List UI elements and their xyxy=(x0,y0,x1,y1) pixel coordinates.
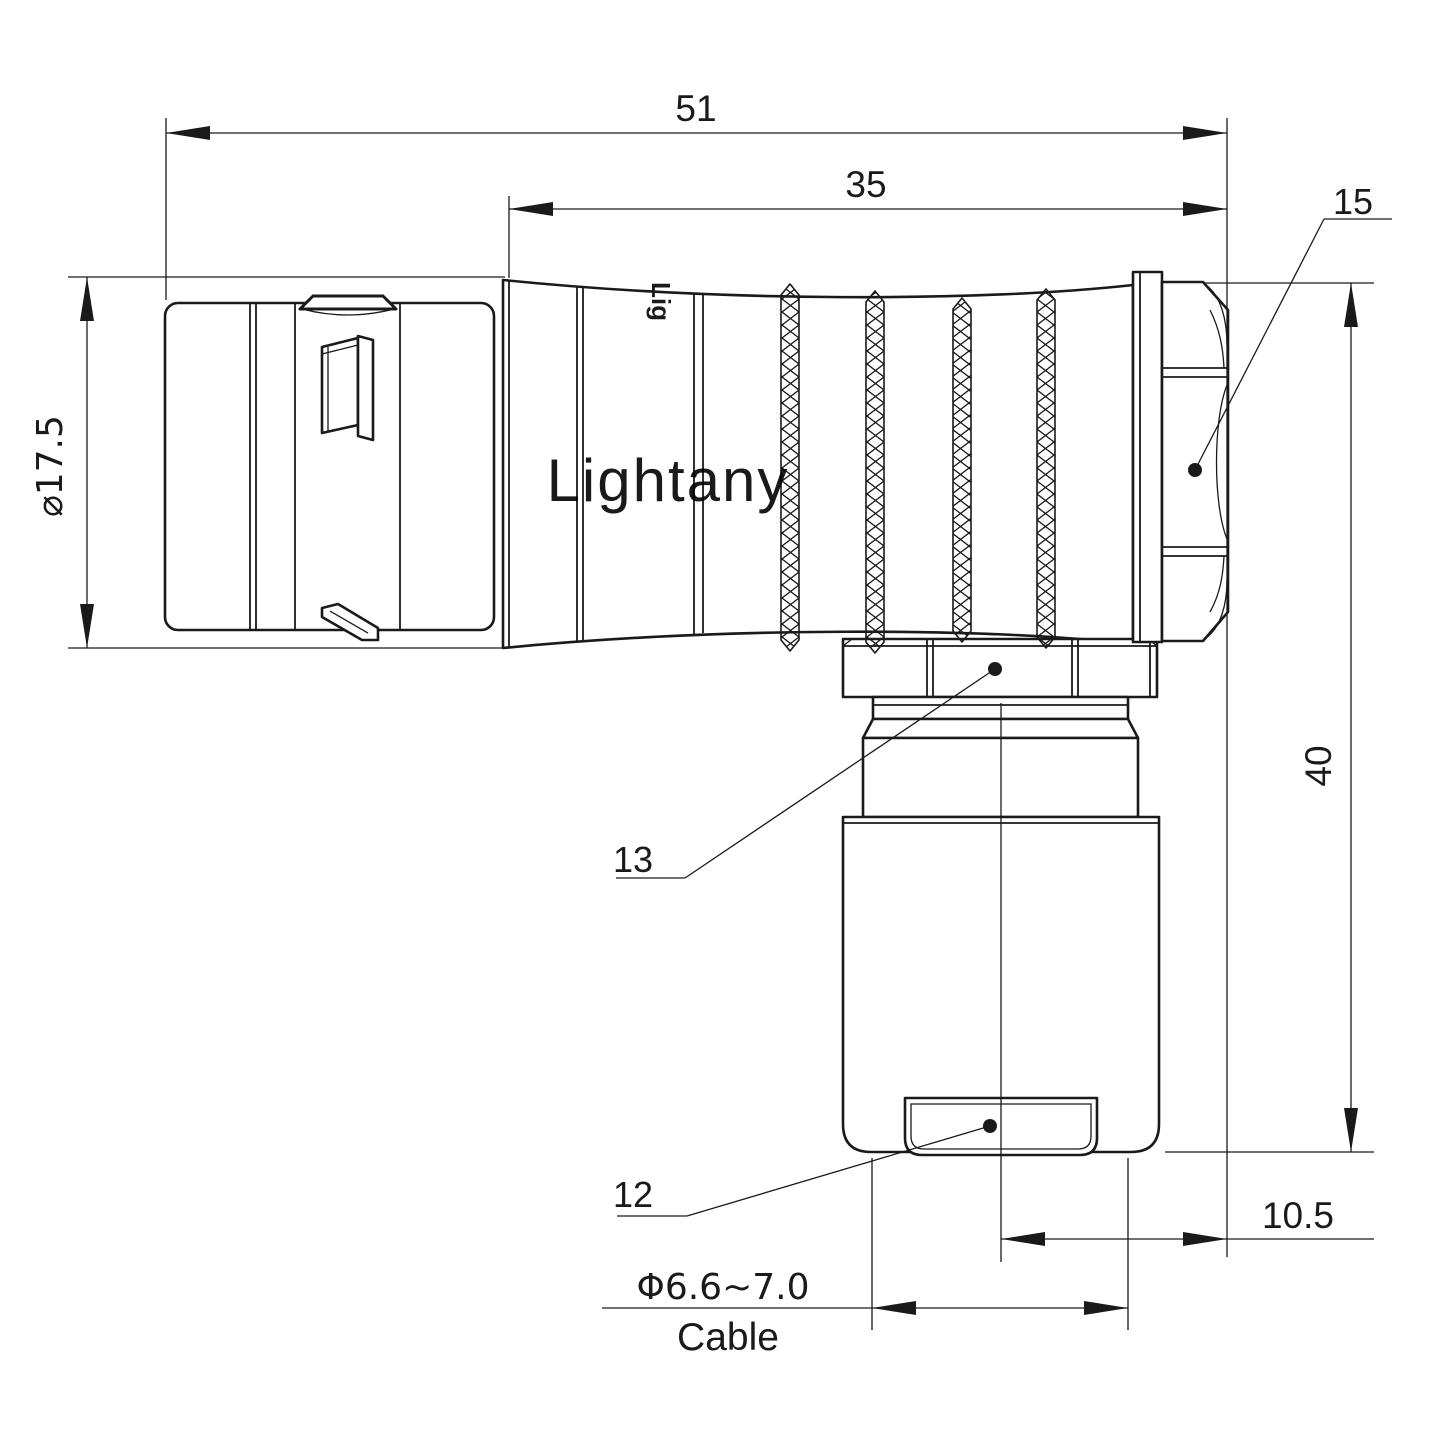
leader-cable-bushing-label: 12 xyxy=(613,1174,653,1215)
connector-body: Lig xyxy=(165,272,1228,1155)
leader-back-nut-label: 15 xyxy=(1333,181,1373,222)
front-flange xyxy=(1133,272,1162,642)
dim-overall-length-label: 51 xyxy=(675,88,716,129)
latch-window xyxy=(322,336,373,440)
connector-elbow-drawing: Lig xyxy=(0,0,1440,1440)
shell-engraving-text: Lig xyxy=(646,282,676,321)
dim-shell-diameter-label: ⌀17.5 xyxy=(30,415,71,517)
watermark-text: Lightany xyxy=(547,447,790,514)
dim-height-label: 40 xyxy=(1298,745,1339,786)
technical-drawing-canvas: Lig xyxy=(0,0,1440,1440)
leader-coupling-nut-label: 13 xyxy=(613,839,653,880)
dimension-layer: 51 35 ⌀17.5 40 xyxy=(30,88,1392,1359)
dim-body-length: 35 xyxy=(509,164,1227,278)
dim-cable-diameter-label: Φ6.6~7.0 xyxy=(636,1267,809,1308)
dim-axis-offset-label: 10.5 xyxy=(1262,1195,1334,1236)
dim-body-length-label: 35 xyxy=(845,164,886,205)
dim-axis-offset: 10.5 xyxy=(1001,1195,1374,1246)
dim-cable-word-label: Cable xyxy=(677,1316,779,1359)
polarization-key xyxy=(300,296,396,309)
front-sleeve xyxy=(165,296,494,640)
back-nut xyxy=(1162,282,1228,641)
dim-overall-length: 51 xyxy=(166,88,1227,300)
dim-cable: Φ6.6~7.0 Cable xyxy=(602,1158,1128,1359)
